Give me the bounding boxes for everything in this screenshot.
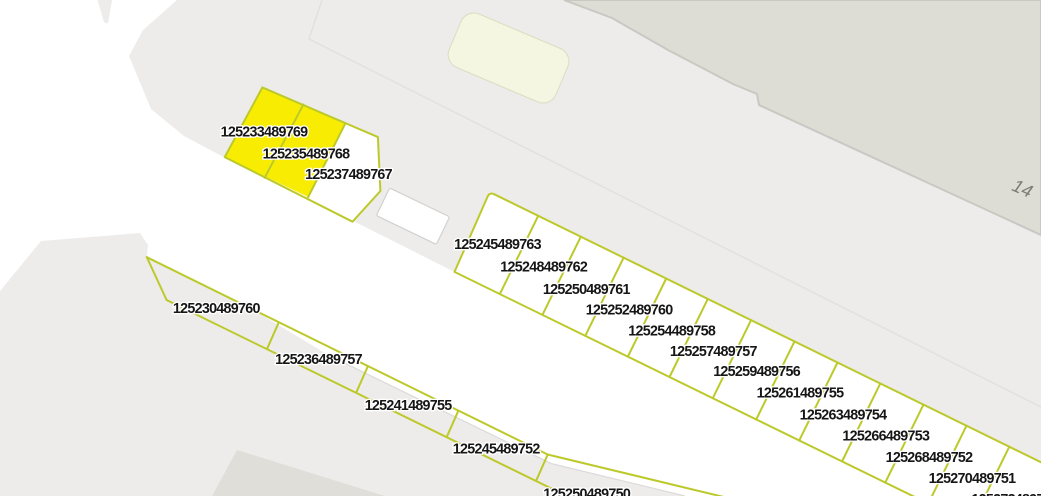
svg-text:125237489767: 125237489767 [305,167,393,183]
svg-text:125250489761: 125250489761 [543,282,631,298]
svg-text:125248489762: 125248489762 [500,260,588,276]
svg-text:125252489760: 125252489760 [586,303,674,319]
svg-text:125233489769: 125233489769 [221,125,309,141]
svg-text:125245489763: 125245489763 [454,237,542,253]
svg-text:125270489751: 125270489751 [929,471,1017,487]
svg-text:125259489756: 125259489756 [713,364,801,380]
svg-text:125266489753: 125266489753 [842,428,930,444]
svg-text:125273489750: 125273489750 [971,492,1041,496]
svg-text:125241489755: 125241489755 [365,398,453,414]
svg-text:125235489768: 125235489768 [263,147,351,163]
svg-text:125263489754: 125263489754 [800,408,888,424]
svg-text:125236489757: 125236489757 [275,352,363,368]
svg-text:125254489758: 125254489758 [628,324,716,340]
svg-text:125257489757: 125257489757 [670,344,758,360]
svg-text:125261489755: 125261489755 [757,386,845,402]
svg-text:125250489750: 125250489750 [543,487,631,496]
svg-text:125245489752: 125245489752 [453,442,541,458]
svg-text:125230489760: 125230489760 [173,301,261,317]
svg-text:125268489752: 125268489752 [886,450,974,466]
